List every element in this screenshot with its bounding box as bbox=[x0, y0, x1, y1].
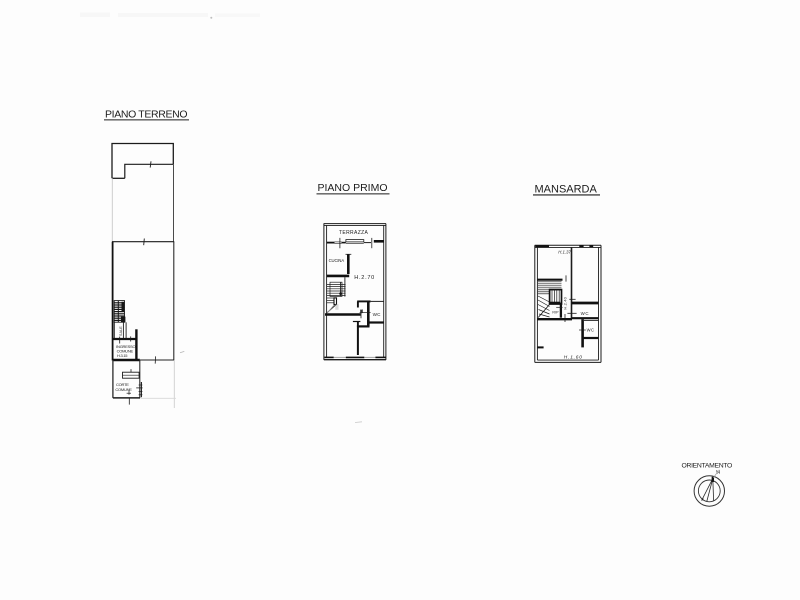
svg-text:WC: WC bbox=[581, 311, 590, 316]
svg-text:N: N bbox=[716, 469, 721, 476]
svg-text:RIP: RIP bbox=[552, 310, 559, 314]
svg-text:WC: WC bbox=[373, 312, 382, 317]
svg-text:PIANO PRIMO: PIANO PRIMO bbox=[318, 182, 388, 194]
svg-text:WC: WC bbox=[587, 328, 595, 333]
svg-text:PIANO TERRENO: PIANO TERRENO bbox=[105, 109, 187, 121]
svg-text:H.1.37: H.1.37 bbox=[558, 250, 571, 255]
svg-text:H.2.70: H.2.70 bbox=[354, 275, 375, 281]
svg-text:CUCINA: CUCINA bbox=[329, 258, 345, 263]
svg-text:H.1.60: H.1.60 bbox=[564, 354, 583, 360]
svg-text:MANSARDA: MANSARDA bbox=[535, 183, 598, 195]
svg-text:ORIENTAMENTO: ORIENTAMENTO bbox=[682, 462, 733, 469]
svg-text:SALE: SALE bbox=[119, 326, 123, 336]
svg-text:TERRAZZA: TERRAZZA bbox=[339, 230, 369, 236]
svg-text:H.3.15: H.3.15 bbox=[117, 353, 128, 358]
svg-text:H.2.40: H.2.40 bbox=[564, 297, 568, 309]
svg-text:COMUNE: COMUNE bbox=[115, 387, 132, 392]
